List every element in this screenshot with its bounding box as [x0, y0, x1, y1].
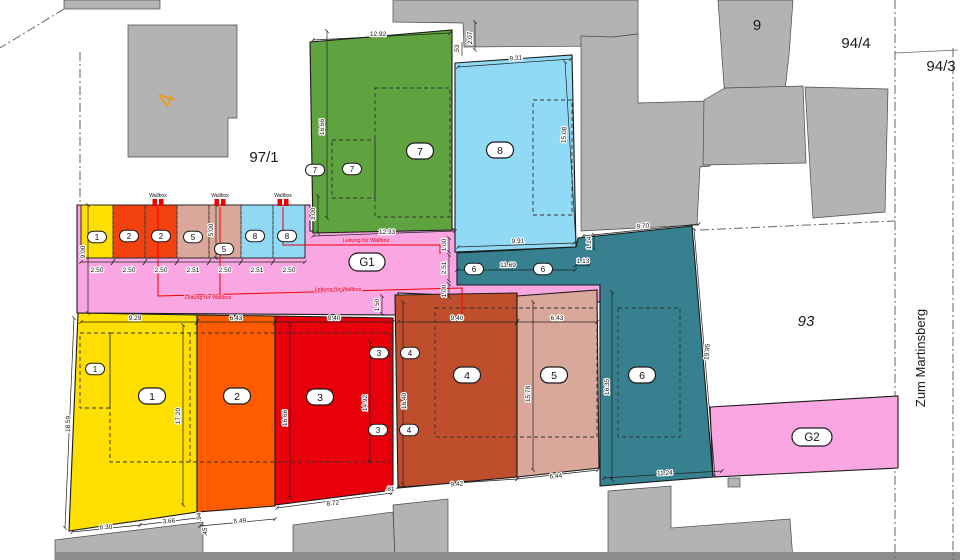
parcel-2 — [197, 315, 275, 512]
dim-label: 1.00 — [441, 284, 448, 297]
svg-text:7: 7 — [350, 165, 355, 174]
building-ne-tall — [805, 87, 888, 218]
unit-badge-6: 6 — [534, 263, 553, 275]
svg-text:5: 5 — [191, 233, 196, 242]
unit-badge-5: 5 — [184, 231, 203, 243]
svg-text:1: 1 — [95, 233, 100, 242]
dim-label: 9.40 — [451, 315, 464, 322]
dim-label: 9.31 — [509, 55, 522, 63]
dim-label: 6.44 — [549, 472, 563, 480]
dim-label: 6.30 — [99, 524, 112, 532]
svg-text:4: 4 — [407, 426, 412, 435]
svg-text:1: 1 — [93, 365, 98, 374]
building-4 — [128, 25, 237, 157]
svg-text:G1: G1 — [359, 257, 374, 269]
dim-label: 2.50 — [91, 267, 104, 274]
svg-text:5: 5 — [551, 370, 557, 382]
site-plan-svg: 12.92 .53 2.07 9.31 15.08 16.66 3.00 12.… — [0, 0, 960, 560]
building-9 — [718, 0, 793, 100]
unit-badge-5: 5 — [541, 367, 568, 383]
wire-label: Leitung für Wallbox — [315, 287, 362, 293]
svg-text:6: 6 — [541, 265, 546, 274]
dim-label: 3.00 — [310, 207, 317, 220]
dim-label: 15.08 — [560, 126, 568, 143]
svg-text:2: 2 — [159, 232, 164, 241]
dim-label: 9.42 — [450, 481, 463, 489]
dim-label: 2.50 — [283, 267, 296, 274]
dim-label: 8.72 — [326, 499, 340, 508]
svg-text:7: 7 — [313, 166, 318, 175]
unit-badge-7: 7 — [306, 164, 325, 176]
parcel-label-97-1: 97/1 — [249, 149, 278, 166]
svg-text:6: 6 — [472, 265, 477, 274]
unit-badge-1: 1 — [86, 363, 105, 375]
parcel-label-93: 93 — [798, 313, 815, 330]
boundary-tick-94-3 — [895, 50, 958, 53]
unit-badge-7: 7 — [407, 143, 434, 159]
building-south-1 — [393, 499, 448, 560]
dim-label: 16.40 — [401, 392, 408, 409]
wallbox-label: Wallbox — [149, 193, 167, 199]
wallbox-label: Wallbox — [274, 193, 292, 199]
dim-label: 16.66 — [282, 409, 289, 426]
boundary-nw — [0, 9, 64, 48]
dim-label: .45 — [202, 527, 209, 536]
unit-badge-2: 2 — [120, 230, 139, 242]
site-plan: 12.92 .53 2.07 9.31 15.08 16.66 3.00 12.… — [0, 0, 960, 560]
dim-label: 9.40 — [328, 315, 341, 322]
unit-badge-8: 8 — [487, 142, 514, 158]
unit-badge-1: 1 — [88, 231, 107, 243]
dim-label: 1.13 — [577, 258, 590, 265]
unit-badge-4: 4 — [401, 347, 420, 359]
svg-text:8: 8 — [497, 145, 503, 157]
svg-text:5: 5 — [222, 245, 227, 254]
dim-label: 6.43 — [551, 315, 564, 322]
unit-badge-3: 3 — [370, 347, 389, 359]
unit-badge-3: 3 — [369, 424, 388, 436]
dim-label: 9.00 — [80, 245, 87, 258]
parcel-3 — [275, 316, 393, 505]
unit-badge-4: 4 — [454, 367, 481, 383]
dim-label: 18.59 — [65, 415, 73, 432]
svg-text:2: 2 — [127, 232, 132, 241]
dim-label: 2.50 — [155, 267, 168, 274]
dim-label: 1.00 — [441, 238, 448, 251]
dim-label: 9.29 — [129, 315, 142, 322]
dim-label: 11.24 — [657, 470, 674, 478]
svg-text:3: 3 — [376, 426, 381, 435]
dim-label: 2.51 — [441, 261, 448, 274]
building-top-left — [64, 0, 160, 9]
unit-badge-5: 5 — [215, 243, 234, 255]
dim-label: 1.50 — [374, 298, 381, 311]
wire-label: Leitung für Wallbox — [185, 295, 232, 301]
dim-label: 9.91 — [512, 238, 525, 245]
svg-text:3: 3 — [377, 349, 382, 358]
dim-label: 1.14 — [586, 236, 593, 249]
dim-label: 16.35 — [604, 378, 611, 395]
unit-badge-8: 8 — [246, 230, 265, 242]
parcel-label-94-4: 94/4 — [841, 35, 870, 52]
unit-badge-6: 6 — [629, 367, 656, 383]
unit-badge-3: 3 — [307, 389, 334, 405]
building-east-of-8 — [581, 34, 710, 231]
dim-label: 5.00 — [208, 223, 215, 236]
wallbox-label: Wallbox — [211, 193, 229, 199]
dim-label: 5.49 — [233, 517, 247, 525]
svg-text:6: 6 — [639, 370, 645, 382]
svg-text:1: 1 — [149, 391, 155, 403]
unit-badge-4: 4 — [400, 424, 419, 436]
svg-text:G2: G2 — [804, 432, 819, 444]
garage-badge-g2: G2 — [792, 428, 832, 446]
dim-label: .53 — [454, 44, 461, 53]
unit-badge-2: 2 — [152, 230, 171, 242]
svg-text:4: 4 — [464, 370, 470, 382]
unit-badge-7: 7 — [343, 163, 362, 175]
dim-label: 16.66 — [319, 118, 326, 135]
dim-label: 3.66 — [162, 517, 176, 525]
dim-label: 2.50 — [123, 267, 136, 274]
dim-label: 14.92 — [362, 394, 369, 411]
dim-label: 19.95 — [703, 343, 711, 360]
dim-label: .81 — [385, 486, 394, 493]
svg-text:8: 8 — [253, 232, 258, 241]
dim-label: 12.33 — [379, 229, 396, 236]
dim-label: 15.78 — [525, 385, 532, 402]
unit-badge-6: 6 — [465, 263, 484, 275]
unit-badge-8: 8 — [278, 230, 297, 242]
svg-text:2: 2 — [234, 391, 240, 403]
dim-label: 2.51 — [187, 267, 200, 274]
parcel-8 — [455, 55, 576, 252]
svg-text:4: 4 — [408, 349, 413, 358]
road-strip — [55, 552, 960, 560]
building-ne-low — [703, 86, 806, 165]
building-marker-small — [728, 478, 740, 487]
svg-text:3: 3 — [317, 392, 323, 404]
parcel-7 — [310, 30, 452, 233]
dim-label: 12.92 — [370, 31, 387, 38]
street-name-label: Zum Martinsberg — [913, 309, 928, 407]
dim-label: 2.07 — [467, 31, 474, 44]
dim-label: 2.51 — [251, 267, 264, 274]
wire-label: Leitung für Wallbox — [343, 238, 390, 244]
building-south-2 — [608, 486, 793, 560]
unit-badge-2: 2 — [224, 388, 251, 404]
unit-badge-1: 1 — [139, 388, 166, 404]
dim-label: .94 — [196, 512, 203, 521]
svg-text:8: 8 — [285, 232, 290, 241]
garage-badge-g1: G1 — [349, 253, 385, 271]
dim-label: 17.20 — [175, 407, 182, 424]
dim-label: 9.70 — [636, 222, 650, 230]
boundary-93-north — [700, 221, 895, 230]
dim-label: 2.50 — [219, 267, 232, 274]
dim-label: 6.43 — [230, 315, 243, 322]
dim-label: 11.69 — [500, 262, 516, 269]
svg-text:7: 7 — [417, 146, 423, 158]
parcel-label-9: 9 — [753, 17, 761, 34]
parcel-label-94-3: 94/3 — [926, 58, 955, 75]
